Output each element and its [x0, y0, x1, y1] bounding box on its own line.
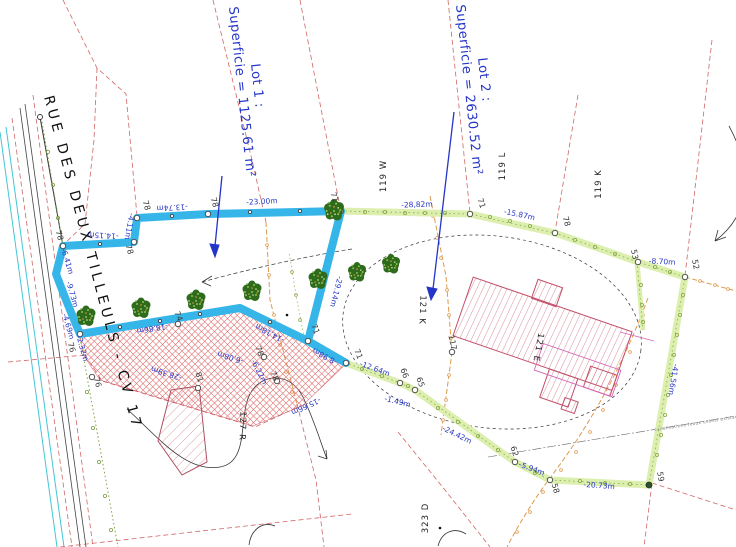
- vertex-label: 65: [414, 376, 426, 389]
- vertex-label: 78: [141, 199, 152, 211]
- parcel-boundaries: [8, 0, 736, 547]
- parcel-label: 119 K: [594, 169, 604, 199]
- turning-arc: [715, 126, 736, 241]
- vertex-label: 66: [398, 367, 410, 380]
- sewer-note-label: canalisations (eaux usées) existantes: [654, 412, 736, 433]
- lot1-label: Lot 1 : Superficie = 1125.61 m²: [225, 6, 267, 178]
- survey-point-59-marker: [646, 482, 652, 488]
- vertex-label: 117: [446, 334, 458, 351]
- vertex-label: 58: [550, 482, 561, 494]
- cadastral-plan: -13.74m -23.00m -4.11m -14.15m -6.41m -9…: [0, 0, 736, 547]
- measurement-label: -13.74m: [156, 202, 188, 213]
- measurement-label: -29.14m: [328, 275, 344, 308]
- curve-hook-right: [438, 531, 466, 546]
- parcel-label: 323 D: [421, 503, 431, 533]
- vertex-label: 76: [92, 376, 103, 388]
- measurement-label: -1.49m: [384, 394, 412, 409]
- vertex-label: 78: [54, 229, 65, 241]
- measurement-label: -5.94m: [518, 460, 546, 478]
- vertex-label: 78: [561, 215, 572, 227]
- measurement-label: -23.00m: [246, 196, 278, 207]
- vertex-label: 71: [329, 191, 341, 203]
- vertex-label: 52: [690, 259, 701, 271]
- measurement-label: -8.70m: [649, 256, 676, 266]
- vertex-label: 71: [476, 197, 488, 209]
- cadastral-plan-canvas: -13.74m -23.00m -4.11m -14.15m -6.41m -9…: [0, 0, 736, 547]
- parcel-label: 119 W: [379, 160, 389, 192]
- vertex-label: 78: [124, 243, 135, 255]
- parcel-label: 119 L: [498, 152, 508, 181]
- flow-arrowhead-icon: [202, 276, 212, 286]
- parcel-label: 121 K: [416, 295, 427, 325]
- point-dot: [286, 314, 289, 317]
- vertex-label: 59: [655, 471, 666, 483]
- measurement-label: -28,82m: [401, 199, 433, 209]
- lot2-label: Lot 2 : Superficie = 2630.52 m²: [452, 4, 494, 176]
- curve-hook-left: [249, 525, 275, 545]
- measurement-label: -20.73m: [583, 480, 615, 491]
- point-dot: [439, 527, 442, 530]
- parcel-label: 127 R: [236, 411, 247, 441]
